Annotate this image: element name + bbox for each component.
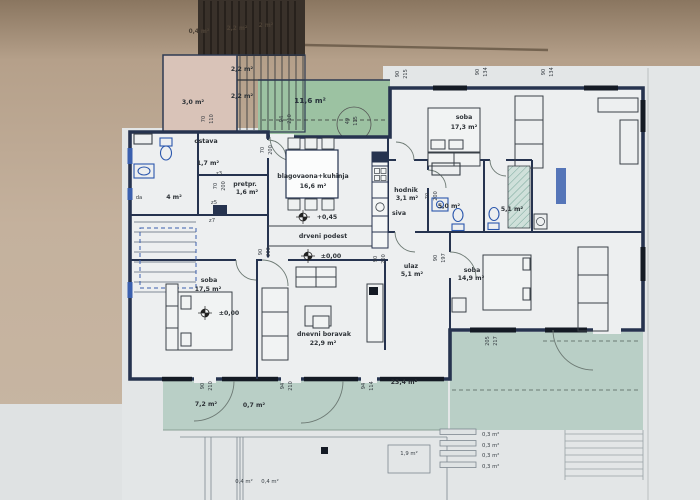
svg-text:114: 114: [369, 381, 375, 391]
terrace-top-area: 11,6 m²: [294, 96, 326, 105]
soba-se-name: soba: [464, 267, 481, 274]
stair-riser-z5: z5: [211, 200, 217, 206]
svg-text:210: 210: [288, 381, 294, 391]
ostava-name: ostava: [194, 138, 217, 145]
soba-w-area: 17,5 m²: [195, 286, 222, 293]
step3-area: 0,3 m²: [482, 452, 499, 459]
hodnik-note: siva: [392, 210, 406, 217]
svg-text:200: 200: [268, 145, 274, 155]
svg-text:49: 49: [345, 118, 351, 124]
svg-text:134: 134: [549, 67, 555, 77]
soba-w-name: soba: [201, 277, 218, 284]
svg-text:115: 115: [353, 116, 359, 126]
attic-label-1: 0,4 m²: [189, 28, 210, 35]
svg-text:200: 200: [381, 254, 387, 264]
dnevni-name: dnevni boravak: [297, 331, 352, 338]
svg-text:70: 70: [213, 183, 219, 189]
soba-se-area: 14,9 m²: [458, 275, 485, 282]
col2-area: 0,4 m²: [261, 478, 278, 485]
elev-kitchen-label: +0,45: [317, 214, 337, 221]
bath-b-area: 5,1 m²: [501, 206, 524, 213]
svg-text:210: 210: [287, 114, 293, 124]
stair-riser-z3: z3: [216, 171, 222, 177]
radiator-blue: [556, 168, 566, 204]
svg-text:205: 205: [485, 336, 491, 346]
step1-area: 0,3 m²: [482, 431, 499, 438]
elev-podest-label: ±0,00: [321, 253, 342, 260]
svg-text:134: 134: [483, 67, 489, 77]
svg-text:200: 200: [266, 247, 272, 257]
svg-text:110: 110: [209, 114, 215, 124]
svg-text:94: 94: [361, 383, 367, 389]
attic-label-2: 2,2 m²: [227, 25, 248, 32]
tv-bench: [367, 284, 383, 342]
sideboard: [296, 267, 336, 287]
bath-left-partial: da: [136, 195, 143, 201]
step2-area: 0,3 m²: [482, 442, 499, 449]
sofa: [262, 288, 288, 360]
col1-area: 0,4 m²: [235, 478, 252, 485]
stair-ext-area: 1,9 m²: [400, 450, 417, 457]
svg-text:215: 215: [403, 69, 409, 79]
stair-lower-area: 2,2 m²: [231, 93, 254, 100]
stair-riser-z7: z7: [209, 218, 215, 224]
attic-label-3: 2 m²: [259, 22, 274, 29]
step4-area: 0,3 m²: [482, 463, 499, 470]
svg-text:90: 90: [433, 255, 439, 261]
storage-room: [163, 55, 237, 132]
svg-text:94: 94: [280, 383, 286, 389]
hodnik-name: hodnik: [394, 187, 419, 194]
svg-text:90: 90: [475, 69, 481, 75]
terrace-w-area: 7,2 m²: [195, 401, 218, 408]
svg-text:90: 90: [541, 69, 547, 75]
blagovaona-area: 16,6 m²: [300, 183, 327, 190]
bath-a-area: 5,0 m²: [438, 203, 461, 210]
terrace-e-area: 23,4 m²: [391, 379, 418, 386]
ulaz-area: 5,1 m²: [401, 271, 424, 278]
stair-upper-area: 2,2 m²: [231, 66, 254, 73]
svg-text:90: 90: [373, 256, 379, 262]
terrace-c-area: 0,7 m²: [243, 402, 266, 409]
svg-text:90: 90: [200, 383, 206, 389]
ostava-area: 1,7 m²: [197, 160, 220, 167]
svg-text:197: 197: [441, 253, 447, 263]
svg-text:90: 90: [258, 249, 264, 255]
soba-ne-area: 17,3 m²: [451, 124, 478, 131]
svg-text:210: 210: [208, 381, 214, 391]
svg-text:94: 94: [279, 116, 285, 122]
pretprostor-area: 1,6 m²: [236, 189, 259, 196]
floor-plan-photo: 0,4 m² 2,2 m² 2 m² 3,0 m² 2,2 m² 2,2 m² …: [0, 0, 700, 500]
storage-area: 3,0 m²: [182, 99, 205, 106]
svg-text:70: 70: [425, 193, 431, 199]
elev-soba-label: ±0,00: [219, 310, 240, 317]
svg-text:70: 70: [260, 147, 266, 153]
svg-text:217: 217: [493, 336, 499, 346]
svg-text:200: 200: [221, 181, 227, 191]
ulaz-name: ulaz: [404, 263, 419, 270]
bath-left-area: 4 m²: [166, 194, 182, 201]
hodnik-area: 3,1 m²: [396, 195, 419, 202]
pretprostor-name: pretpr.: [233, 181, 257, 188]
kitchen-counter: [372, 152, 388, 248]
svg-text:90: 90: [395, 71, 401, 77]
blagovaona-name: blagovaona+kuhinja: [277, 173, 348, 180]
svg-text:200: 200: [433, 191, 439, 201]
soba-ne-name: soba: [456, 114, 473, 121]
bed-soba-w: [166, 284, 232, 350]
dnevni-area: 22,9 m²: [310, 340, 337, 347]
floor-plan-drawing: 0,4 m² 2,2 m² 2 m² 3,0 m² 2,2 m² 2,2 m² …: [0, 0, 700, 500]
podest-label: drveni podest: [299, 233, 347, 240]
svg-text:70: 70: [201, 116, 207, 122]
